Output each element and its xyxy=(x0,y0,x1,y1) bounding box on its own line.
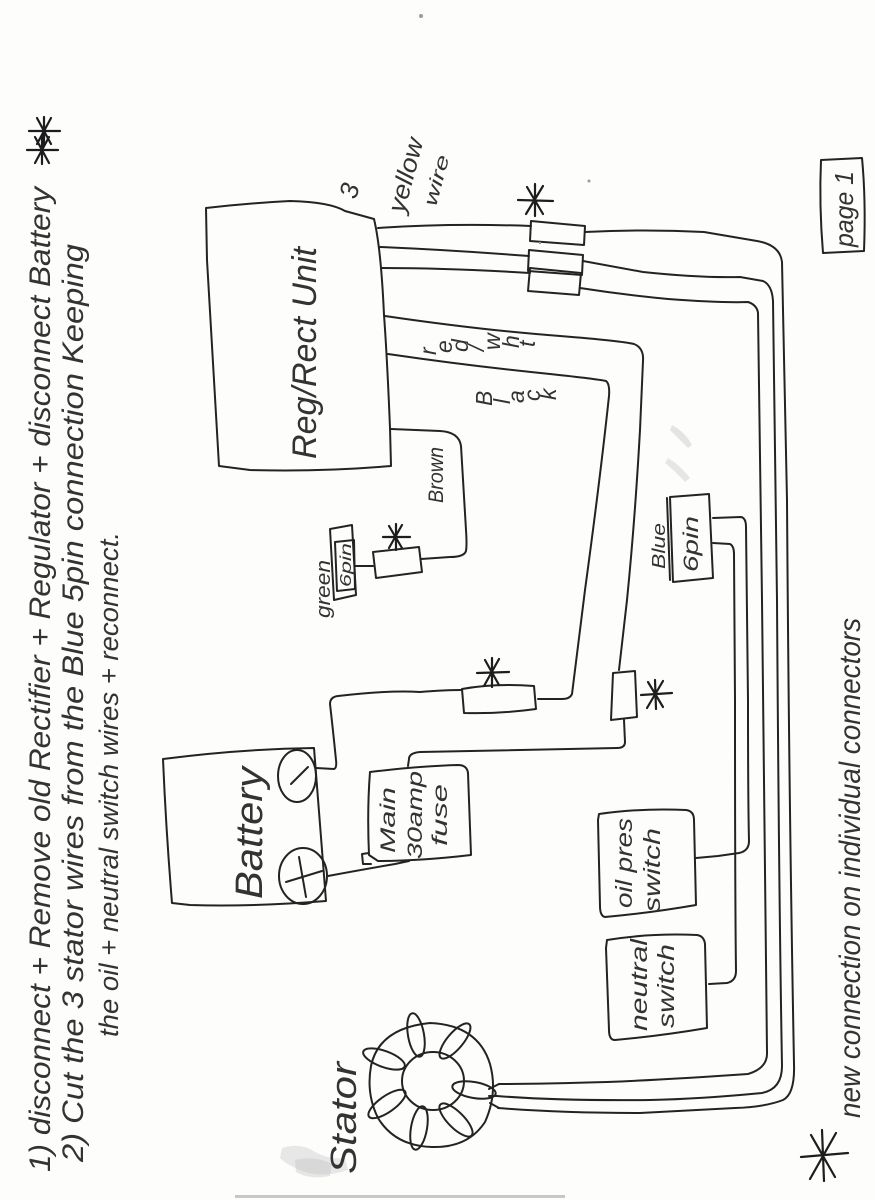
svg-text:green: green xyxy=(313,560,335,618)
svg-text:new connection on individual c: new connection on individual connectors xyxy=(834,618,867,1118)
svg-text:6pin: 6pin xyxy=(680,516,703,572)
svg-text:2) Cut the 3 stator wires from: 2) Cut the 3 stator wires from the Blue … xyxy=(57,244,90,1163)
svg-text:Stator: Stator xyxy=(323,1060,364,1174)
svg-text:oil pres: oil pres xyxy=(611,817,637,908)
svg-text:k: k xyxy=(535,387,561,400)
svg-text:page 1: page 1 xyxy=(829,171,859,248)
svg-text:6pin: 6pin xyxy=(338,543,355,587)
svg-text:Blue: Blue xyxy=(649,523,669,569)
svg-text:30amp: 30amp xyxy=(404,771,427,859)
svg-text:Main: Main xyxy=(377,787,400,853)
svg-text:Brown: Brown xyxy=(425,447,448,503)
svg-text:Battery: Battery xyxy=(229,765,271,899)
svg-text:fuse: fuse xyxy=(429,784,452,846)
svg-text:1) disconnect + Remove old Rec: 1) disconnect + Remove old Rectifier + R… xyxy=(24,185,57,1172)
svg-text:Reg/Rect Unit: Reg/Rect Unit xyxy=(286,245,324,459)
svg-text:switch: switch xyxy=(653,944,679,1028)
svg-text:neutral: neutral xyxy=(626,938,652,1031)
svg-text:switch: switch xyxy=(639,828,665,912)
svg-text:the oil + neutral switch wires: the oil + neutral switch wires + reconne… xyxy=(94,532,124,1037)
